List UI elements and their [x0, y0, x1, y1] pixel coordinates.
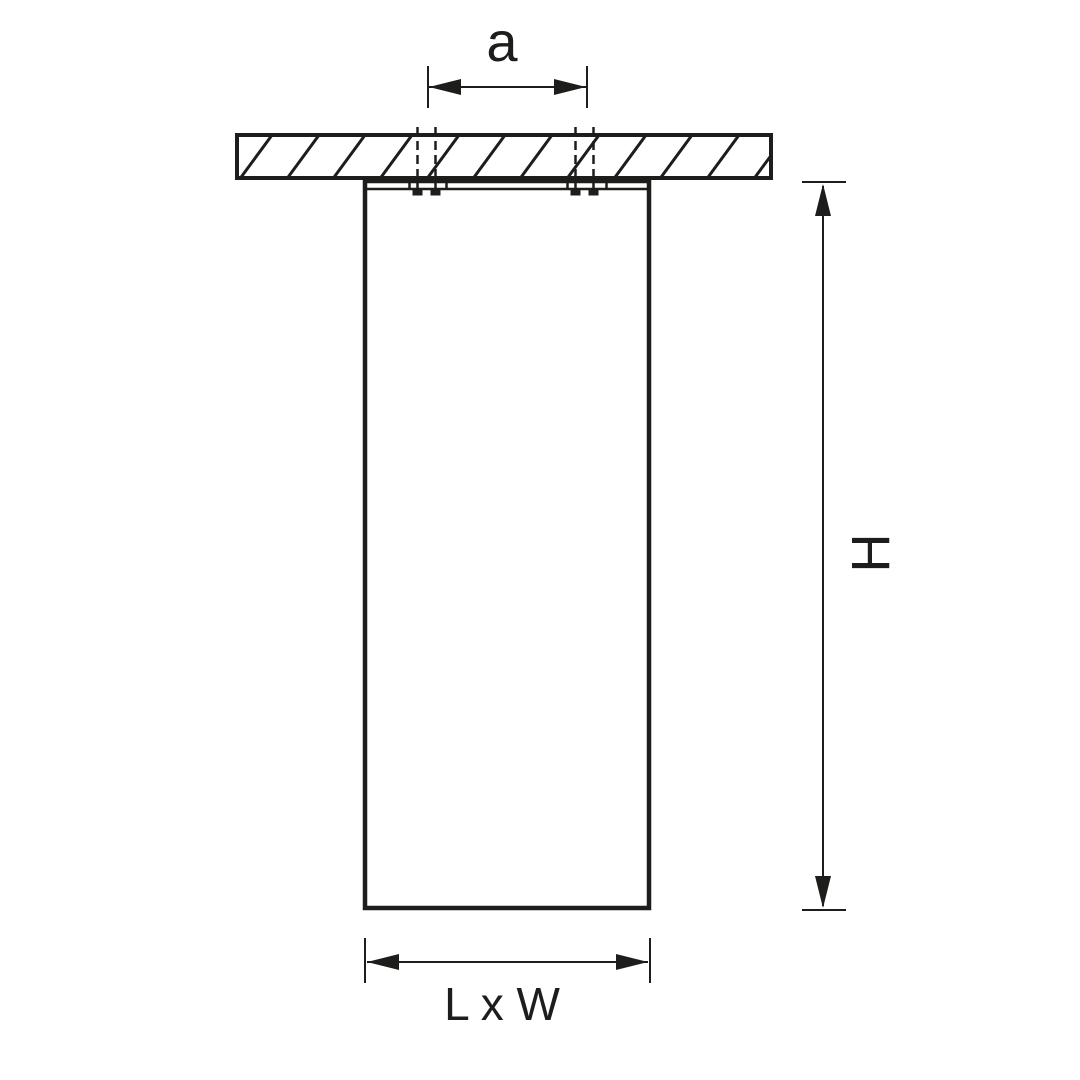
fixture-body-outline [365, 181, 649, 908]
ceiling-slab [237, 131, 789, 180]
arrowhead-right-icon [554, 79, 586, 95]
arrowhead-up-icon [815, 184, 831, 216]
arrowhead-right-icon [616, 954, 648, 970]
dimension-lxw: L x W [365, 938, 650, 1030]
dimension-lxw-label: L x W [444, 978, 560, 1030]
dimension-h: H [802, 182, 901, 910]
luminaire-dimension-drawing: a H L x W [0, 0, 1080, 1080]
dimension-a-label: a [486, 10, 518, 73]
dimension-h-label: H [841, 534, 901, 573]
ceiling-slab-outline [237, 135, 771, 178]
dimension-drawing-canvas: a H L x W [0, 0, 1080, 1080]
fixture-body [365, 180, 649, 908]
dimension-a: a [428, 10, 587, 108]
arrowhead-left-icon [367, 954, 399, 970]
arrowhead-left-icon [429, 79, 461, 95]
arrowhead-down-icon [815, 876, 831, 908]
